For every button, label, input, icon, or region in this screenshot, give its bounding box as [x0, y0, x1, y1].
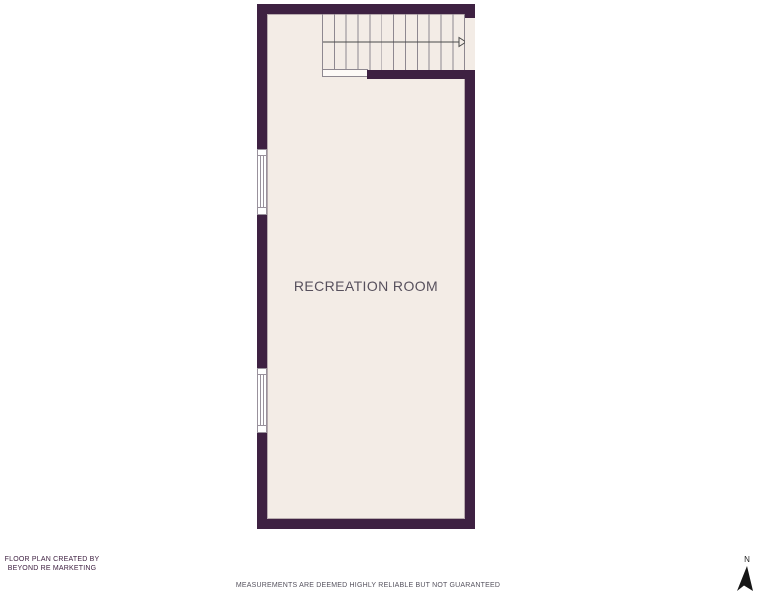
- window-frame-cap: [258, 425, 266, 426]
- compass: N: [735, 555, 759, 592]
- window-2: [257, 368, 267, 433]
- window-glass: [260, 156, 264, 207]
- compass-needle-icon: [737, 565, 757, 592]
- floor-plan: RECREATION ROOM: [257, 4, 475, 529]
- stair-landing: [322, 69, 368, 77]
- window-frame-cap: [258, 207, 266, 208]
- window-1: [257, 149, 267, 215]
- wall-below-stairs: [367, 70, 475, 79]
- credit-line-1: FLOOR PLAN CREATED BY: [2, 555, 102, 564]
- north-label: N: [735, 555, 759, 564]
- room-floor: [267, 14, 465, 519]
- disclaimer-text: MEASUREMENTS ARE DEEMED HIGHLY RELIABLE …: [168, 582, 568, 589]
- stair-direction-arrow: [322, 34, 472, 50]
- stair-wall-opening: [465, 18, 475, 70]
- credit-line-2: BEYOND RE MARKETING: [2, 564, 102, 573]
- room-label: RECREATION ROOM: [267, 278, 465, 294]
- credit-text: FLOOR PLAN CREATED BY BEYOND RE MARKETIN…: [2, 555, 102, 573]
- window-glass: [260, 375, 264, 425]
